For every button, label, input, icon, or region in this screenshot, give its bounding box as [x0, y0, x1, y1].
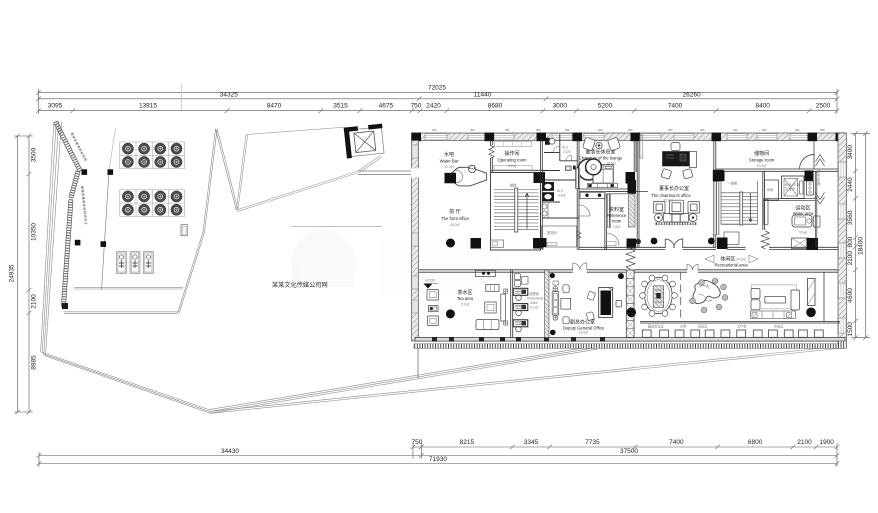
- svg-text:休闲: 休闲: [767, 187, 773, 192]
- svg-text:The chairman's office: The chairman's office: [651, 193, 691, 198]
- svg-text:2500: 2500: [816, 103, 831, 110]
- svg-text:72025: 72025: [428, 85, 446, 92]
- svg-text:休闲区 24.5㎡: 休闲区 24.5㎡: [720, 256, 746, 263]
- svg-text:Storage room: Storage room: [749, 158, 775, 163]
- svg-text:3560: 3560: [847, 210, 854, 225]
- svg-text:圆桌会议区: 圆桌会议区: [648, 324, 665, 329]
- svg-text:1500: 1500: [847, 322, 854, 337]
- svg-text:6.2㎡: 6.2㎡: [461, 302, 469, 307]
- svg-text:W.C: W.C: [557, 189, 564, 193]
- svg-text:2100: 2100: [847, 251, 854, 266]
- svg-text:800: 800: [847, 236, 854, 247]
- svg-text:2.1㎡: 2.1㎡: [563, 149, 571, 154]
- svg-text:10.2㎡: 10.2㎡: [757, 163, 767, 168]
- svg-text:2100: 2100: [797, 439, 812, 446]
- svg-text:W.C: W.C: [562, 146, 569, 150]
- svg-text:26260: 26260: [683, 92, 701, 99]
- svg-text:阳光走廊: 阳光走廊: [816, 169, 820, 186]
- svg-text:某某文化传媒公司网: 某某文化传媒公司网: [272, 281, 328, 289]
- svg-text:9.6㎡: 9.6㎡: [799, 230, 807, 235]
- svg-text:董事长办公室: 董事长办公室: [659, 185, 689, 192]
- svg-text:The front office: The front office: [441, 216, 470, 221]
- svg-text:副总办公室: 副总办公室: [570, 319, 595, 326]
- svg-text:Reference: Reference: [607, 213, 627, 218]
- svg-text:8470: 8470: [267, 103, 282, 110]
- svg-text:> 楼梯: > 楼梯: [728, 181, 738, 186]
- svg-text:Water Bar: Water Bar: [440, 159, 459, 164]
- svg-text:750: 750: [411, 103, 422, 110]
- svg-text:Administrat: Administrat: [527, 297, 543, 301]
- svg-text:34430: 34430: [221, 448, 239, 455]
- svg-text:Recreational area: Recreational area: [714, 263, 748, 268]
- svg-text:room: room: [612, 219, 622, 224]
- svg-text:资料室: 资料室: [609, 206, 624, 213]
- svg-text:2100: 2100: [31, 294, 38, 309]
- svg-text:4600: 4600: [847, 288, 854, 303]
- svg-text:45.3㎡: 45.3㎡: [450, 222, 460, 227]
- svg-text:8400: 8400: [755, 103, 770, 110]
- svg-text:3.4㎡: 3.4㎡: [558, 193, 566, 198]
- svg-text:经理室: 经理室: [529, 291, 539, 296]
- svg-text:7735: 7735: [585, 439, 600, 446]
- svg-text:水吧: 水吧: [680, 324, 687, 329]
- svg-text:生浦间: 生浦间: [785, 186, 795, 191]
- svg-text:18.6㎡: 18.6㎡: [579, 330, 589, 335]
- svg-text:储物间: 储物间: [754, 150, 769, 157]
- svg-text:750: 750: [412, 439, 423, 446]
- svg-text:Operating room: Operating room: [497, 158, 527, 163]
- svg-text:+0.530: +0.530: [425, 279, 435, 283]
- svg-text:休息区: 休息区: [774, 324, 784, 329]
- svg-text:24935: 24935: [9, 264, 16, 282]
- svg-text:楼梯: 楼梯: [510, 183, 517, 188]
- svg-text:工作台: 工作台: [737, 324, 747, 329]
- svg-text:3345: 3345: [524, 439, 539, 446]
- svg-text:2440: 2440: [847, 177, 854, 192]
- svg-text:2420: 2420: [426, 103, 441, 110]
- svg-text:13915: 13915: [139, 103, 157, 110]
- svg-text:11440: 11440: [474, 92, 492, 99]
- svg-text:Tea area: Tea area: [457, 296, 474, 301]
- svg-text:7400: 7400: [669, 439, 684, 446]
- svg-text:6800: 6800: [748, 439, 763, 446]
- svg-text:3515: 3515: [333, 103, 348, 110]
- svg-text:8680: 8680: [488, 103, 503, 110]
- svg-text:8985: 8985: [31, 355, 38, 370]
- svg-text:10350: 10350: [31, 223, 38, 241]
- svg-text:1900: 1900: [819, 439, 834, 446]
- svg-text:8215: 8215: [460, 439, 475, 446]
- svg-text:7.8㎡: 7.8㎡: [613, 224, 621, 229]
- svg-text:8.6㎡: 8.6㎡: [508, 163, 516, 168]
- svg-text:阅览区: 阅览区: [698, 324, 708, 329]
- svg-text:3400: 3400: [847, 145, 854, 160]
- svg-text:18400: 18400: [858, 237, 865, 255]
- svg-text:34325: 34325: [220, 92, 238, 99]
- svg-text:office: office: [530, 301, 538, 305]
- svg-text:操作间: 操作间: [504, 150, 519, 157]
- svg-text:3500: 3500: [31, 147, 38, 162]
- svg-text:前 厅: 前 厅: [449, 208, 460, 215]
- svg-text:35.2㎡: 35.2㎡: [663, 198, 673, 203]
- svg-text:茶水区: 茶水区: [457, 289, 472, 296]
- svg-text:71930: 71930: [429, 456, 447, 463]
- svg-text:4675: 4675: [379, 103, 394, 110]
- svg-text:12.3㎡: 12.3㎡: [444, 164, 454, 169]
- svg-text:5200: 5200: [598, 103, 613, 110]
- svg-text:7400: 7400: [668, 103, 683, 110]
- svg-text:9.2㎡: 9.2㎡: [530, 305, 538, 310]
- svg-text:3000: 3000: [553, 103, 568, 110]
- svg-text:37500: 37500: [620, 448, 638, 455]
- svg-text:水吧: 水吧: [444, 151, 454, 158]
- svg-text:3095: 3095: [48, 103, 63, 110]
- svg-text:Water area: Water area: [793, 211, 814, 216]
- svg-text:盥洗间: 盥洗间: [547, 230, 557, 235]
